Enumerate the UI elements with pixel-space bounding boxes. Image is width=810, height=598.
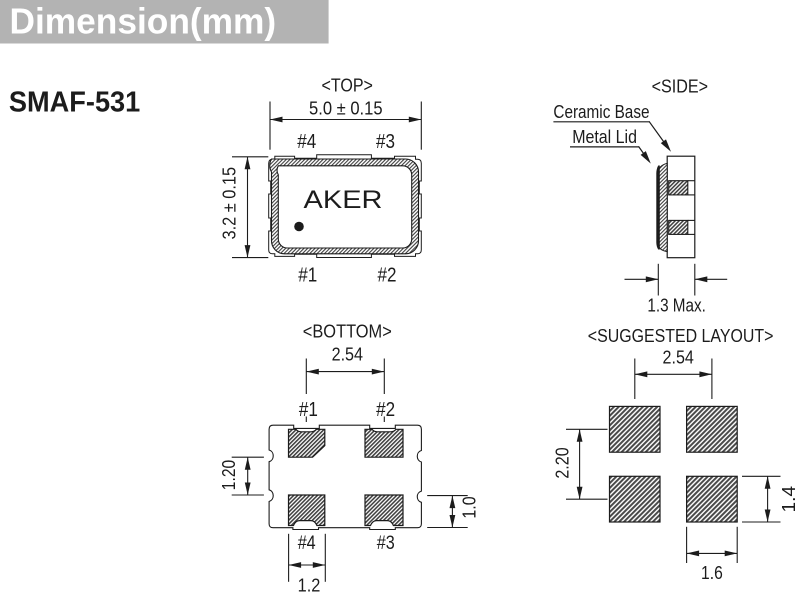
svg-text:#1: #1 [298, 265, 317, 287]
svg-text:2.20: 2.20 [551, 447, 572, 478]
svg-text:<SUGGESTED LAYOUT>: <SUGGESTED LAYOUT> [588, 325, 774, 346]
svg-text:1.20: 1.20 [218, 460, 239, 490]
svg-text:#2: #2 [378, 265, 397, 287]
svg-text:1.2: 1.2 [298, 574, 321, 595]
svg-text:Dimension(mm): Dimension(mm) [10, 0, 277, 41]
svg-text:2.54: 2.54 [663, 346, 694, 367]
svg-text:#1: #1 [299, 399, 318, 421]
svg-text:#3: #3 [376, 131, 395, 153]
svg-text:#4: #4 [298, 533, 316, 554]
svg-text:5.0 ± 0.15: 5.0 ± 0.15 [309, 97, 383, 118]
svg-text:#2: #2 [376, 399, 395, 421]
svg-text:1.0: 1.0 [459, 496, 480, 518]
svg-text:1.3 Max.: 1.3 Max. [647, 295, 706, 316]
svg-text:<SIDE>: <SIDE> [652, 75, 708, 96]
svg-text:3.2 ± 0.15: 3.2 ± 0.15 [219, 167, 240, 240]
svg-text:AKER: AKER [304, 186, 383, 214]
svg-text:<TOP>: <TOP> [321, 75, 373, 96]
svg-text:2.54: 2.54 [332, 343, 363, 364]
svg-text:1.6: 1.6 [701, 562, 723, 583]
svg-text:Ceramic Base: Ceramic Base [553, 101, 649, 122]
svg-text:1.4: 1.4 [778, 486, 799, 513]
svg-text:#4: #4 [297, 131, 316, 153]
svg-text:#3: #3 [377, 533, 395, 554]
svg-text:<BOTTOM>: <BOTTOM> [303, 321, 392, 342]
svg-text:SMAF-531: SMAF-531 [9, 86, 140, 118]
svg-text:Metal Lid: Metal Lid [572, 126, 637, 147]
